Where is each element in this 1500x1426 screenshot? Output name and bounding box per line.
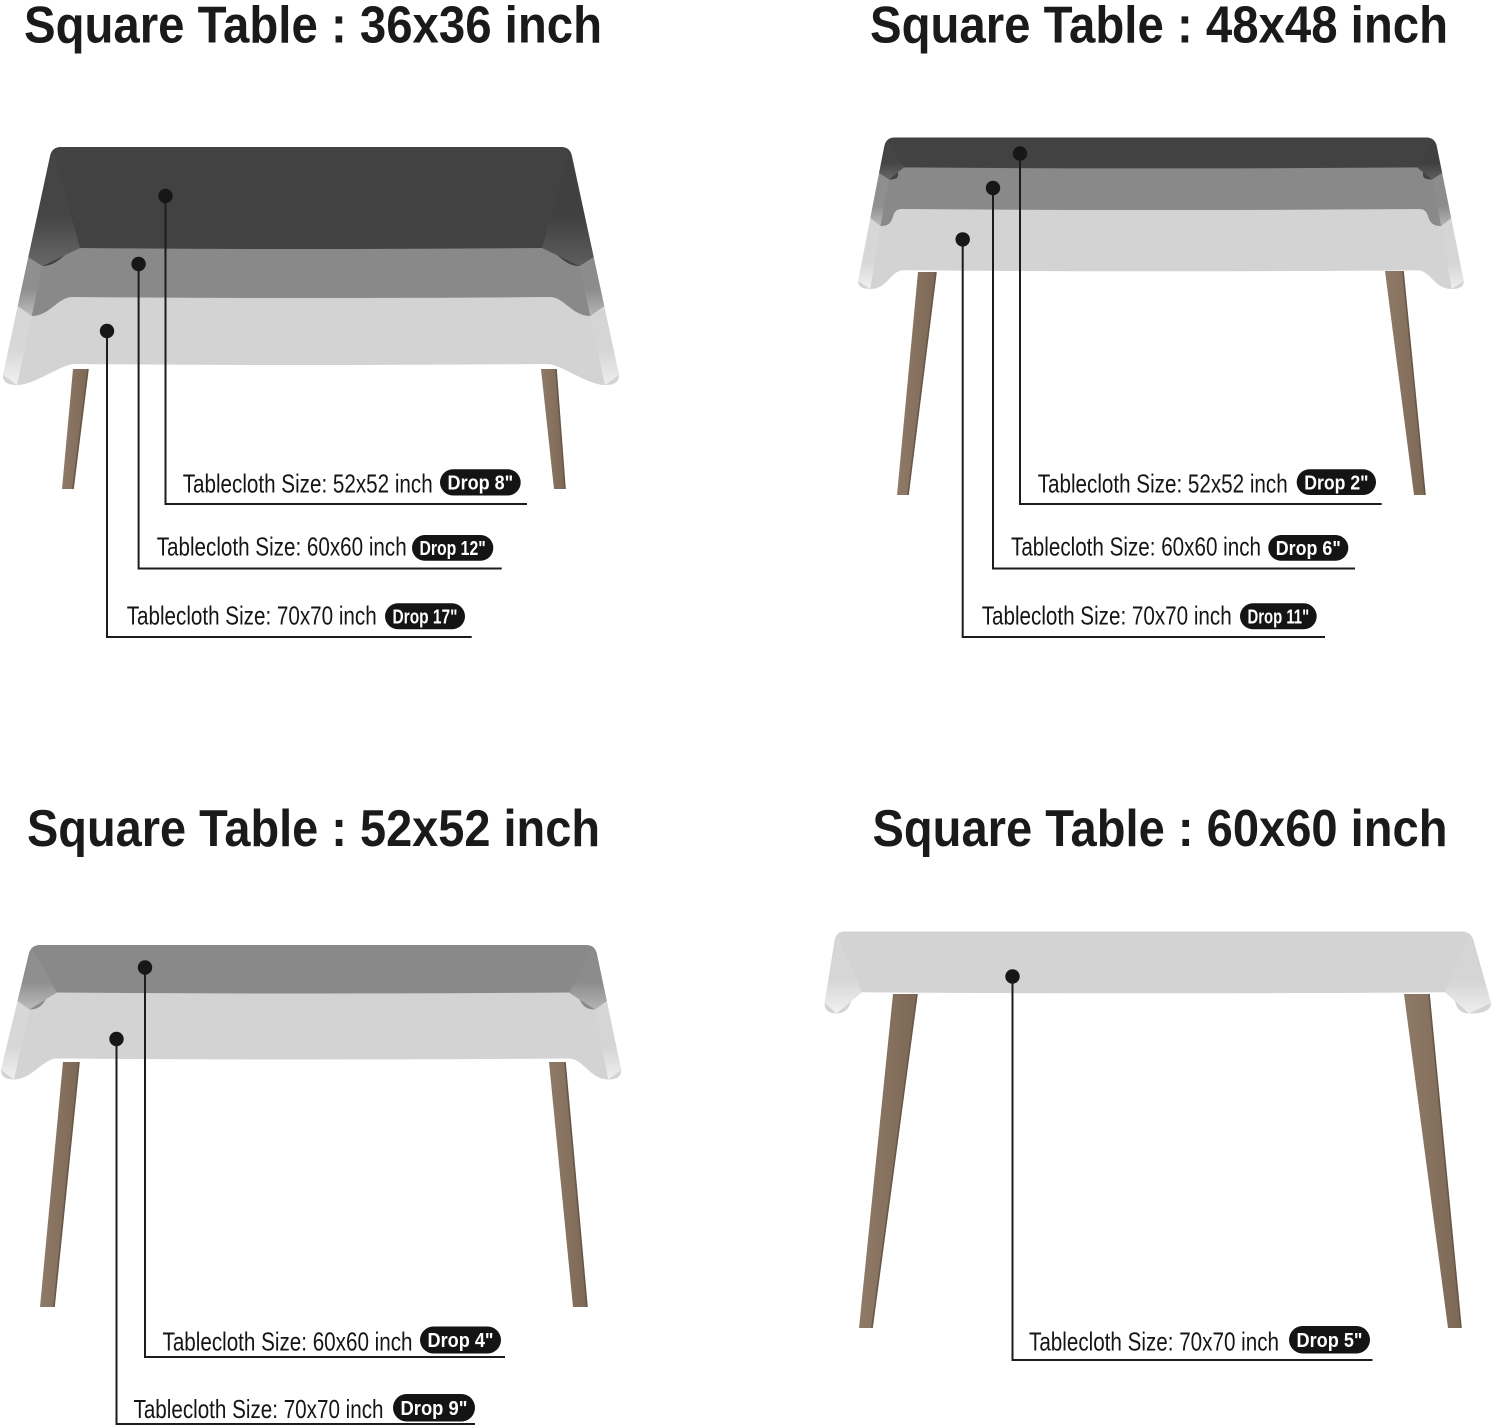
svg-text:Drop 11": Drop 11" [1247,606,1309,629]
svg-text:Tablecloth Size: 60x60 inch: Tablecloth Size: 60x60 inch [157,532,407,562]
svg-text:Tablecloth Size: 70x70 inch: Tablecloth Size: 70x70 inch [982,601,1232,631]
svg-text:Square Table : 36x36 inch: Square Table : 36x36 inch [24,0,602,55]
svg-text:Square Table : 60x60 inch: Square Table : 60x60 inch [873,800,1448,858]
svg-text:Drop 12": Drop 12" [419,537,485,560]
svg-text:Drop 6": Drop 6" [1276,537,1341,560]
svg-text:Tablecloth Size: 52x52 inch: Tablecloth Size: 52x52 inch [183,469,433,499]
svg-text:Tablecloth Size: 52x52 inch: Tablecloth Size: 52x52 inch [1038,469,1288,499]
svg-text:Drop 9": Drop 9" [401,1397,468,1420]
svg-text:Drop 4": Drop 4" [428,1329,494,1352]
svg-text:Drop 8": Drop 8" [448,472,514,495]
svg-text:Tablecloth Size: 70x70 inch: Tablecloth Size: 70x70 inch [1029,1327,1279,1357]
svg-text:Tablecloth Size: 60x60 inch: Tablecloth Size: 60x60 inch [163,1327,413,1357]
svg-text:Drop 2": Drop 2" [1304,471,1368,494]
svg-text:Tablecloth Size: 70x70 inch: Tablecloth Size: 70x70 inch [127,601,377,631]
svg-text:Square Table : 52x52 inch: Square Table : 52x52 inch [27,800,600,858]
svg-text:Drop 5": Drop 5" [1297,1329,1363,1352]
svg-text:Drop 17": Drop 17" [393,606,458,629]
svg-text:Square Table : 48x48 inch: Square Table : 48x48 inch [870,0,1448,55]
svg-text:Tablecloth Size: 70x70 inch: Tablecloth Size: 70x70 inch [134,1394,384,1424]
svg-text:Tablecloth Size: 60x60 inch: Tablecloth Size: 60x60 inch [1011,532,1261,562]
